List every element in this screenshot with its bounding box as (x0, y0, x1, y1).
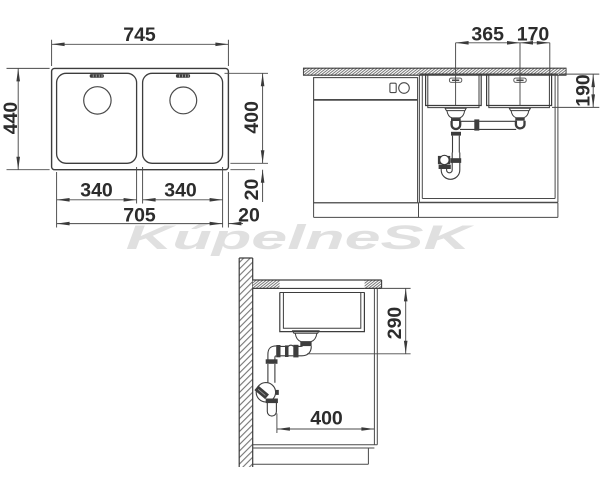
svg-text:290: 290 (384, 307, 406, 340)
svg-text:365: 365 (471, 23, 504, 45)
svg-text:20: 20 (238, 204, 260, 226)
svg-text:190: 190 (572, 74, 594, 107)
svg-text:745: 745 (123, 24, 156, 46)
svg-text:440: 440 (0, 102, 22, 135)
svg-text:400: 400 (241, 101, 263, 134)
svg-text:340: 340 (80, 180, 113, 202)
svg-text:20: 20 (241, 179, 263, 201)
svg-text:400: 400 (310, 408, 343, 430)
svg-text:705: 705 (123, 204, 156, 226)
svg-text:170: 170 (517, 23, 550, 45)
svg-text:340: 340 (164, 180, 197, 202)
